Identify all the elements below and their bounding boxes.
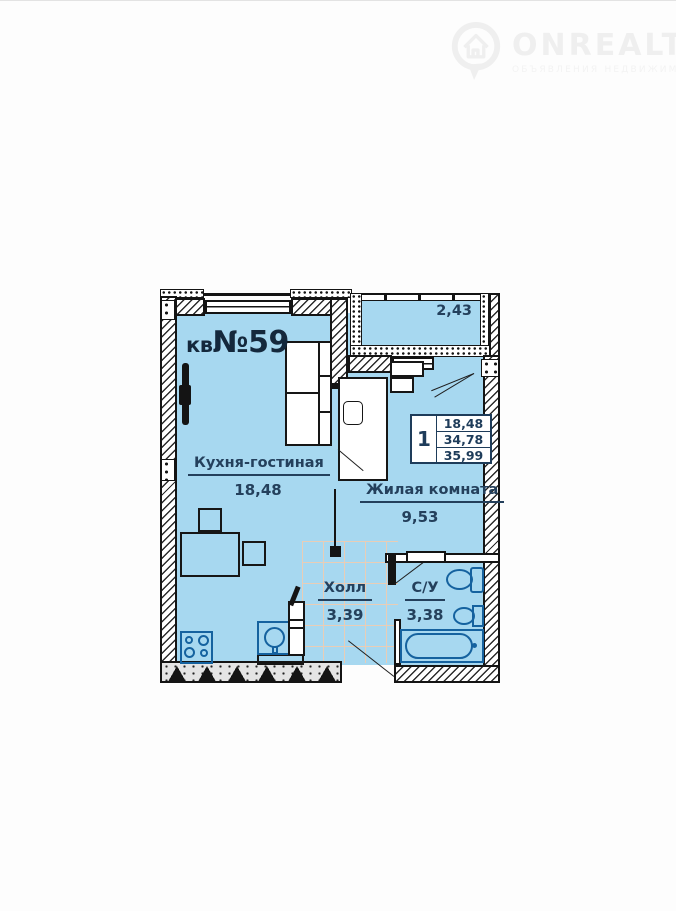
house-pin-icon [448, 20, 504, 86]
balcony-area-label: 2,43 [412, 303, 472, 319]
sofa-arm-line-1 [318, 375, 332, 377]
dining-table [180, 532, 240, 577]
balcony-glazing [350, 293, 489, 301]
bathroom-area: 3,38 [393, 606, 457, 624]
rooms-count: 1 [412, 416, 437, 462]
screenshot-canvas: { "watermark": { "brand": "ONREALT", "ta… [0, 0, 676, 911]
hall-area: 3,39 [312, 606, 378, 624]
kitchen-area: 18,48 [188, 481, 328, 499]
living-label: Жилая комната 9,53 [360, 479, 480, 526]
wardrobe-upper [390, 361, 424, 377]
tall-cabinet-line-1 [288, 619, 305, 621]
wall-bottom-concrete [160, 661, 342, 683]
wall-right-upper [489, 293, 500, 359]
bed-pillow [343, 401, 363, 425]
bathtub-inner [405, 633, 473, 659]
radiator-valve [179, 385, 191, 405]
bathroom-name: С/У [405, 580, 444, 601]
wall-kitchen-living [330, 298, 348, 388]
bathtub-drain [472, 643, 477, 648]
kitchen-label: Кухня-гостиная 18,48 [188, 452, 328, 499]
wall-top-dotband-right [290, 289, 352, 298]
wall-left [160, 296, 177, 683]
living-area: 9,53 [360, 508, 480, 526]
apartment-label: кв№59 [186, 325, 289, 360]
chair-right [242, 541, 266, 566]
wardrobe-lower [390, 377, 414, 393]
watermark-tagline: ОБЪЯВЛЕНИЯ НЕДВИЖИМОСТИ [512, 65, 676, 75]
area-info-table: 1 18,48 34,78 35,99 [410, 414, 492, 464]
wall-right [483, 355, 500, 683]
stove-burner-4 [200, 649, 208, 657]
partition-cap [330, 546, 341, 557]
wall-bottom-right [394, 665, 500, 683]
wall-joint-right [481, 359, 499, 377]
stove-burner-2 [198, 635, 209, 646]
tall-cabinet-line-2 [288, 627, 305, 629]
apartment-label-prefix: кв [186, 333, 213, 357]
washer-niche [406, 551, 446, 563]
living-name: Жилая комната [360, 482, 504, 503]
wall-north-pier-right [291, 298, 332, 316]
apartment-label-number: №59 [213, 325, 289, 360]
partition-line [334, 489, 336, 549]
kitchen-name: Кухня-гостиная [188, 455, 330, 476]
sofa-arm-line-2 [318, 411, 332, 413]
bed [338, 377, 388, 481]
living-area-value: 18,48 [437, 416, 490, 431]
wall-joint-left-mid [161, 459, 175, 481]
sofa-seat-line [285, 392, 320, 394]
floor-plan: 1 18,48 34,78 35,99 кв№59 2,43 Кухня-гос… [160, 289, 500, 686]
kitchen-sink-bowl [264, 627, 285, 648]
hall-name: Холл [318, 580, 372, 601]
hall-label: Холл 3,39 [312, 577, 378, 624]
stove-burner-1 [185, 636, 193, 644]
watermark-brand: ONREALT [512, 31, 676, 61]
total-area-value: 35,99 [437, 447, 490, 463]
wall-under-balcony [348, 355, 392, 373]
stove-burner-3 [184, 647, 195, 658]
chair-top [198, 508, 222, 532]
kitchen-sink-tap [272, 646, 278, 654]
wall-north-pier-left [175, 298, 205, 316]
apartment-area-value: 34,78 [437, 431, 490, 447]
wall-joint-top-left [161, 300, 175, 320]
bathroom-label: С/У 3,38 [393, 577, 457, 624]
kitchen-window [205, 300, 291, 314]
wall-top-line [204, 293, 290, 296]
watermark: ONREALT ОБЪЯВЛЕНИЯ НЕДВИЖИМОСТИ [448, 17, 672, 89]
